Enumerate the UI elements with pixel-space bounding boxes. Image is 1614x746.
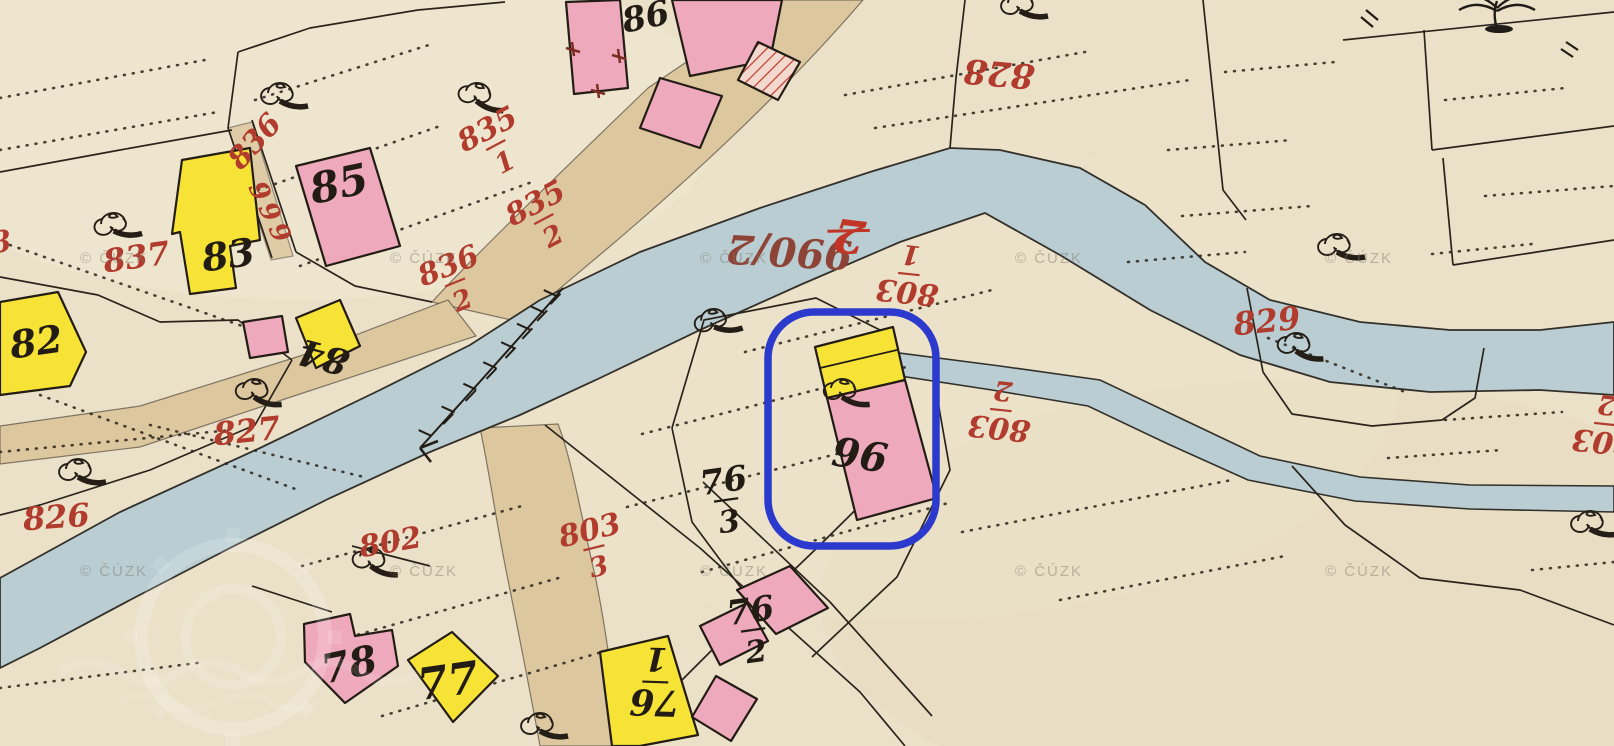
cadastral-map-canvas: 8288369998351835283628378278268028033803… (0, 0, 1614, 746)
svg-text:828: 828 (962, 50, 1037, 96)
svg-text:96: 96 (829, 426, 891, 480)
cuzk-copyright-watermark: © ČÚZK (390, 250, 458, 267)
cuzk-copyright-watermark: © ČÚZK (1015, 563, 1083, 580)
cuzk-copyright-watermark: © ČÚZK (1015, 250, 1083, 267)
cuzk-copyright-watermark: © ČÚZK (700, 250, 768, 267)
cuzk-copyright-watermark: © ČÚZK (80, 563, 148, 580)
cuzk-copyright-watermark: © ČÚZK (80, 250, 148, 267)
svg-text:2: 2 (830, 207, 869, 265)
cuzk-copyright-watermark: © ČÚZK (1325, 563, 1393, 580)
cuzk-copyright-watermark: © ČÚZK (390, 563, 458, 580)
parcel-label-829: 829 (1231, 299, 1302, 344)
parcel-label-828: 828 (962, 50, 1037, 96)
svg-text:803: 803 (966, 407, 1033, 448)
svg-text:77: 77 (414, 652, 482, 711)
svg-text:1: 1 (644, 639, 668, 678)
svg-text:76: 76 (724, 588, 776, 634)
svg-text:1: 1 (900, 238, 922, 271)
parcel-label-83: 83 (198, 229, 258, 281)
cuzk-copyright-watermark: © ČÚZK (700, 563, 768, 580)
cadastral-map-viewport: 8288369998351835283628378278268028033803… (0, 0, 1614, 746)
svg-text:2: 2 (992, 374, 1015, 407)
parcel-label-82: 82 (6, 316, 66, 368)
parcel-label-77: 77 (414, 652, 482, 711)
svg-text:827: 827 (211, 409, 282, 454)
svg-text:826: 826 (21, 496, 91, 539)
svg-text:76: 76 (697, 458, 749, 504)
svg-text:76: 76 (629, 680, 681, 724)
building-84-annex (243, 316, 288, 358)
parcel-label-827: 827 (211, 409, 282, 454)
parcel-label-826: 826 (21, 496, 91, 539)
svg-text:803: 803 (1570, 421, 1614, 462)
cuzk-copyright-watermark: © ČÚZK (1325, 250, 1393, 267)
svg-text:83: 83 (198, 229, 258, 281)
building-86-a (566, 0, 628, 94)
svg-text:82: 82 (6, 316, 66, 368)
svg-text:829: 829 (1231, 299, 1302, 344)
parcel-label-96: 96 (829, 426, 891, 480)
svg-text:803: 803 (874, 271, 941, 312)
